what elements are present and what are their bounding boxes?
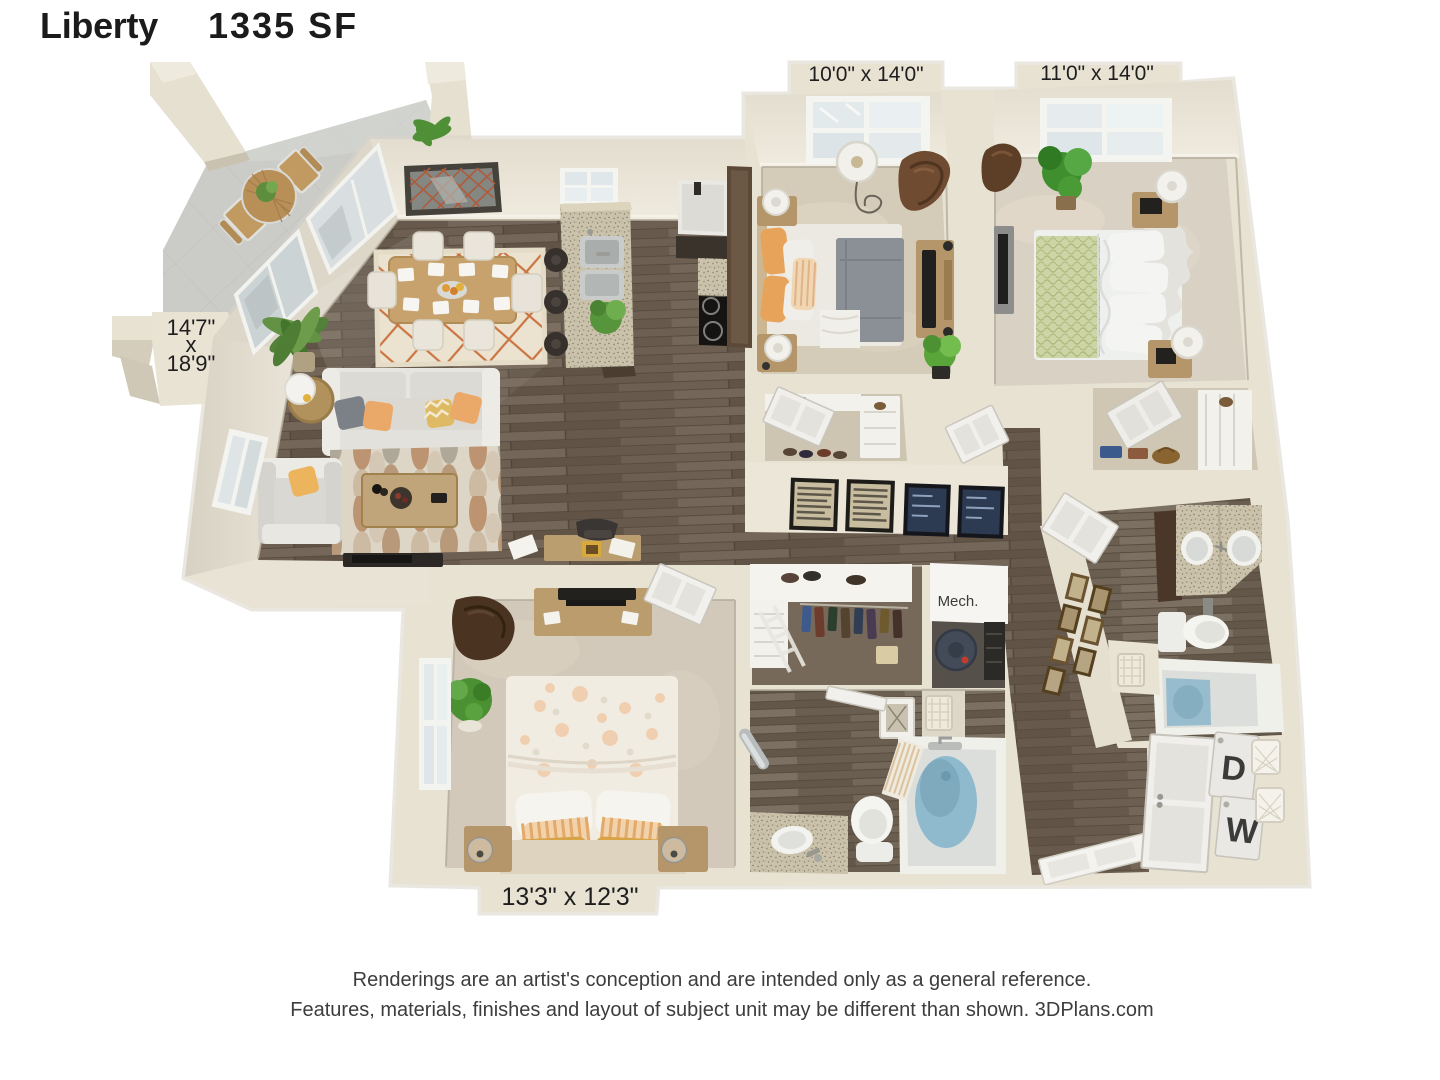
svg-text:D: D xyxy=(1219,749,1247,789)
svg-text:Mech.: Mech. xyxy=(938,593,979,610)
svg-text:18'9": 18'9" xyxy=(167,351,216,376)
svg-text:13'3" x 12'3": 13'3" x 12'3" xyxy=(501,883,638,911)
svg-text:11'0" x 14'0": 11'0" x 14'0" xyxy=(1040,62,1154,85)
svg-text:1335 SF: 1335 SF xyxy=(208,5,358,46)
svg-text:Features, materials, finishes: Features, materials, finishes and layout… xyxy=(290,999,1153,1021)
svg-text:10'0" x 14'0": 10'0" x 14'0" xyxy=(808,63,923,86)
svg-text:Liberty: Liberty xyxy=(40,5,158,46)
svg-text:Renderings are an artist's con: Renderings are an artist's conception an… xyxy=(353,969,1092,991)
